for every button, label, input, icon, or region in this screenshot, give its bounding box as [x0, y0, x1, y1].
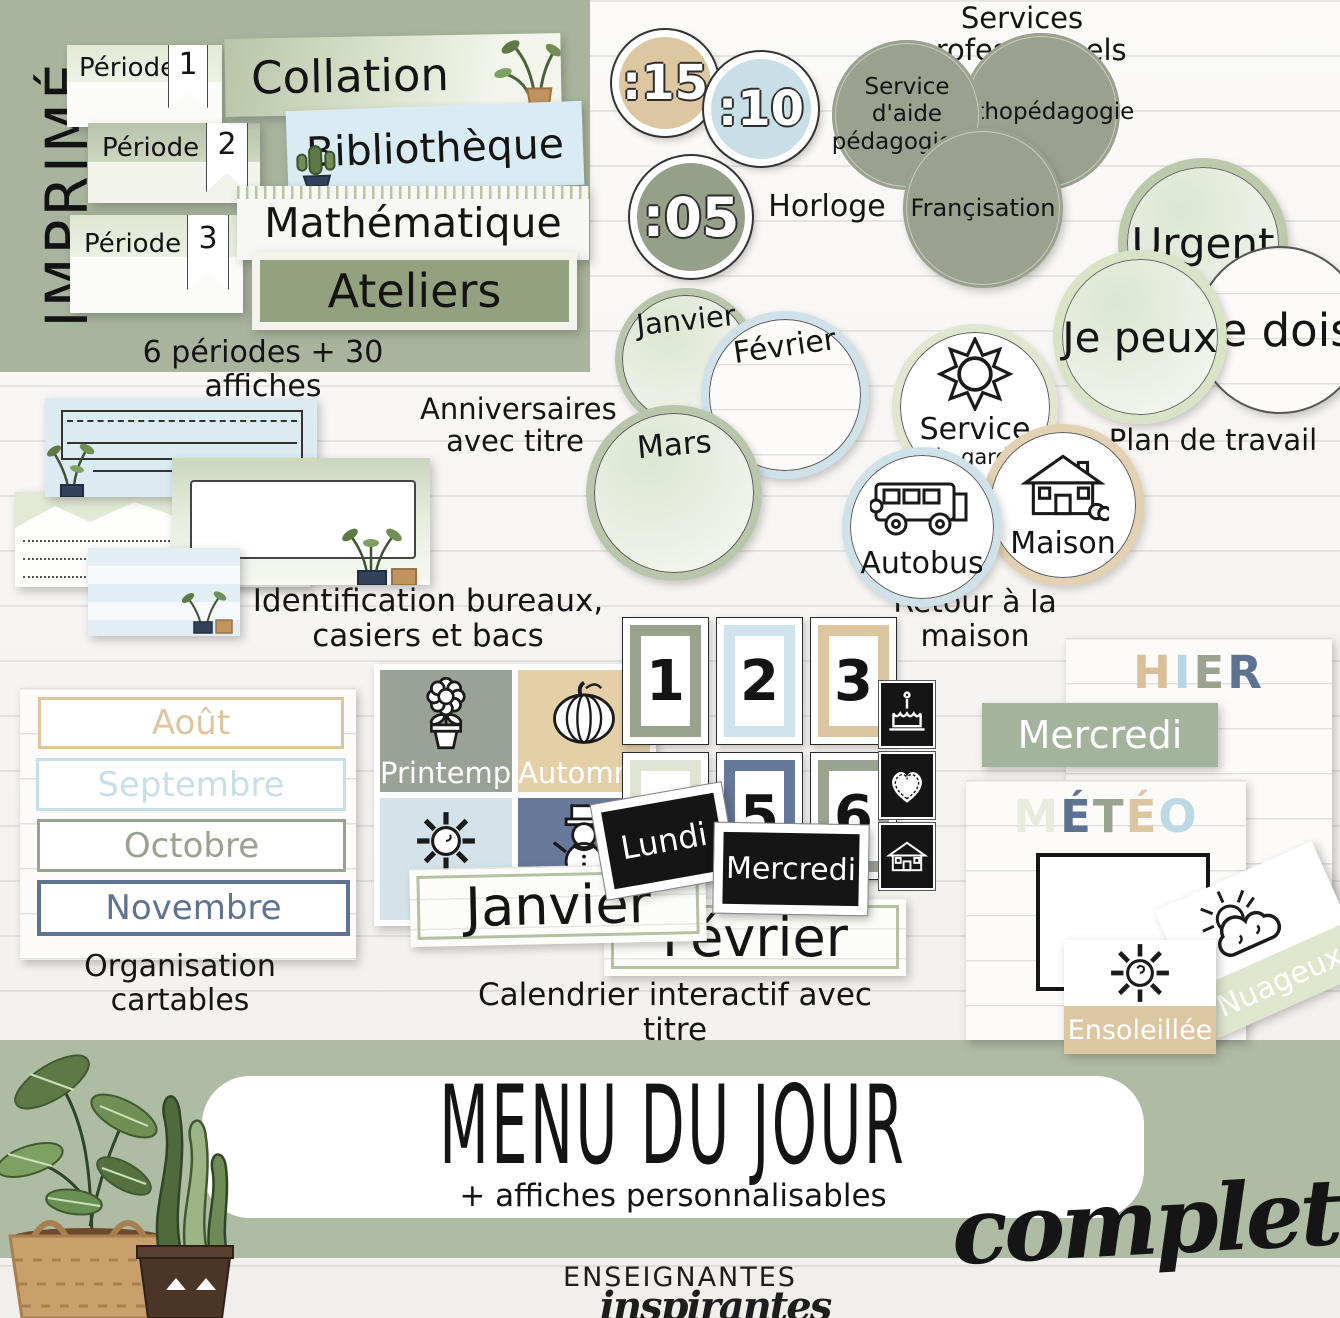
bookmark-ribbon-icon: 3: [187, 215, 229, 290]
subject-label: Bibliothèque: [305, 120, 564, 177]
hier-word: HIER: [1066, 646, 1332, 699]
caption-line: casiers et bacs: [248, 619, 608, 654]
brand-logo: ENSEIGNANTES inspirantes: [520, 1262, 840, 1318]
anniversaires-caption: Anniversaires avec titre: [420, 393, 610, 458]
weather-band: Ensoleillée: [1064, 1006, 1216, 1054]
vine-decor: [237, 186, 589, 199]
organisation-caption: Organisation cartables: [55, 950, 305, 1017]
maison-circle: Maison: [982, 424, 1144, 586]
bookmark-ribbon-icon: 2: [206, 123, 248, 192]
house-icon: [1017, 450, 1109, 526]
hier-letter: I: [1174, 646, 1194, 699]
month-label: Mars: [635, 424, 712, 466]
subject-strip-bibliotheque: Bibliothèque: [286, 101, 585, 195]
month-strip-label: Octobre: [124, 826, 259, 866]
weather-label: Ensoleillée: [1068, 1015, 1213, 1046]
product-collage: IMPRIMÉ Période 1 Période 2 Période 3 Co…: [0, 0, 1340, 1318]
month-strip-label: Novembre: [105, 888, 281, 928]
hier-letter: R: [1227, 646, 1265, 699]
number-value: 3: [834, 649, 873, 714]
dashed-line: [67, 420, 297, 422]
number-card-2: 2: [716, 617, 803, 745]
month-strip-aout: Août: [38, 697, 344, 749]
imprime-caption: 6 périodes + 30 affiches: [88, 336, 438, 403]
aujourdhui-banner: Mercredi: [982, 703, 1218, 767]
clock-circle-15: :15: [612, 30, 718, 136]
number-value: 2: [740, 649, 779, 714]
brand-logo-line2: inspirantes: [590, 1283, 840, 1318]
number-frame: 2: [724, 625, 795, 737]
period-label: Période: [79, 53, 176, 83]
month-circle-mars: Mars: [586, 405, 762, 581]
subject-label: Collation: [225, 47, 476, 104]
period-number: 1: [178, 47, 197, 82]
caption-line: cartables: [55, 984, 305, 1018]
service-label: Françisation: [911, 194, 1056, 222]
calendar-icon-strip: [879, 681, 931, 890]
horloge-caption: Horloge: [762, 190, 892, 224]
identification-caption: Identification bureaux, casiers et bacs: [248, 584, 608, 653]
weather-card-ensoleillee: Ensoleillée: [1064, 940, 1216, 1054]
bookmark-ribbon-icon: 1: [168, 45, 208, 108]
subject-label: Mathématique: [264, 199, 562, 247]
month-label: Janvier: [635, 298, 738, 342]
complet-script: complet: [947, 1158, 1340, 1286]
number-frame: 1: [630, 625, 701, 737]
subject-strip-mathematique: Mathématique: [237, 186, 589, 260]
month-strip-label: Août: [152, 703, 230, 743]
pumpkin-icon: [546, 678, 622, 750]
period-card-3: Période 3: [70, 215, 243, 313]
autobus-label: Autobus: [860, 546, 983, 581]
maison-label: Maison: [1010, 526, 1116, 561]
clock-value: :15: [622, 55, 708, 111]
plant-icon: [182, 590, 240, 638]
hier-letter: E: [1194, 646, 1228, 699]
flower-pot-icon: [414, 676, 478, 754]
organisation-panel: Août Septembre Octobre Novembre: [20, 688, 356, 960]
subject-label: Ateliers: [328, 264, 502, 318]
period-label: Période: [84, 229, 181, 259]
day-label: Lundi: [618, 815, 710, 868]
meteo-word: MÉTÉO: [966, 790, 1246, 843]
plant-icon: [338, 523, 428, 589]
service-circle-francisation: Françisation: [903, 128, 1063, 288]
saison-cell-printemps: Printemps: [380, 670, 512, 792]
caption-line: Anniversaires: [420, 393, 610, 425]
plant-icon: [47, 441, 113, 501]
banner-title-text: MENU DU JOUR: [440, 1062, 907, 1189]
period-label: Période: [102, 133, 199, 163]
meteo-letter: O: [1158, 790, 1198, 843]
je-peux-circle: Je peux: [1053, 250, 1227, 424]
plan-travail-caption: Plan de travail: [1108, 424, 1318, 456]
sun-icon: [936, 337, 1014, 415]
clock-value: :10: [718, 81, 804, 137]
month-strip-label: Septembre: [97, 765, 284, 805]
saison-label: Printemps: [380, 756, 512, 790]
clock-circle-10: :10: [704, 52, 818, 166]
meteo-letter: É: [1060, 790, 1093, 843]
cactus-icon: [293, 141, 341, 191]
subject-strip-ateliers: Ateliers: [252, 252, 577, 330]
meteo-letter: M: [1013, 790, 1060, 843]
calendrier-caption: Calendrier interactif avec titre: [445, 978, 905, 1047]
house-icon: [879, 823, 935, 890]
clock-value: :05: [643, 186, 740, 249]
month-label: Février: [731, 322, 838, 371]
school-bus-icon: [870, 474, 974, 544]
caption-line: Organisation: [55, 950, 305, 984]
month-strip-novembre: Novembre: [37, 880, 350, 936]
meteo-letter: T: [1093, 790, 1126, 843]
period-card-2: Période 2: [88, 123, 260, 203]
clock-circle-05: :05: [630, 156, 752, 278]
period-number: 2: [217, 127, 236, 162]
aujourdhui-label: Mercredi: [1018, 713, 1183, 757]
je-peux-label: Je peux: [1062, 313, 1218, 362]
day-label: Mercredi: [726, 850, 857, 887]
sun-doodle-icon: [1107, 940, 1173, 1010]
period-number: 3: [198, 221, 217, 256]
caption-line: Identification bureaux,: [248, 584, 608, 619]
month-strip-septembre: Septembre: [36, 758, 346, 811]
cake-icon: [879, 681, 935, 748]
nameplate-small-blue: [88, 548, 240, 636]
meteo-letter: É: [1126, 790, 1159, 843]
retour-caption: Retour à la maison: [840, 586, 1110, 653]
period-card-1: Période 1: [67, 45, 222, 127]
autobus-circle: Autobus: [842, 447, 1002, 607]
number-card-1: 1: [622, 617, 709, 745]
heart-icon: [879, 752, 935, 819]
day-card-mercredi: Mercredi: [713, 823, 869, 916]
number-value: 1: [646, 649, 685, 714]
hier-letter: H: [1133, 646, 1174, 699]
plant-icon: [474, 36, 561, 109]
caption-line: avec titre: [420, 425, 610, 457]
month-strip-octobre: Octobre: [37, 819, 346, 872]
banner-title: MENU DU JOUR: [202, 1078, 1144, 1174]
potted-plants-illustration: [0, 1046, 240, 1318]
